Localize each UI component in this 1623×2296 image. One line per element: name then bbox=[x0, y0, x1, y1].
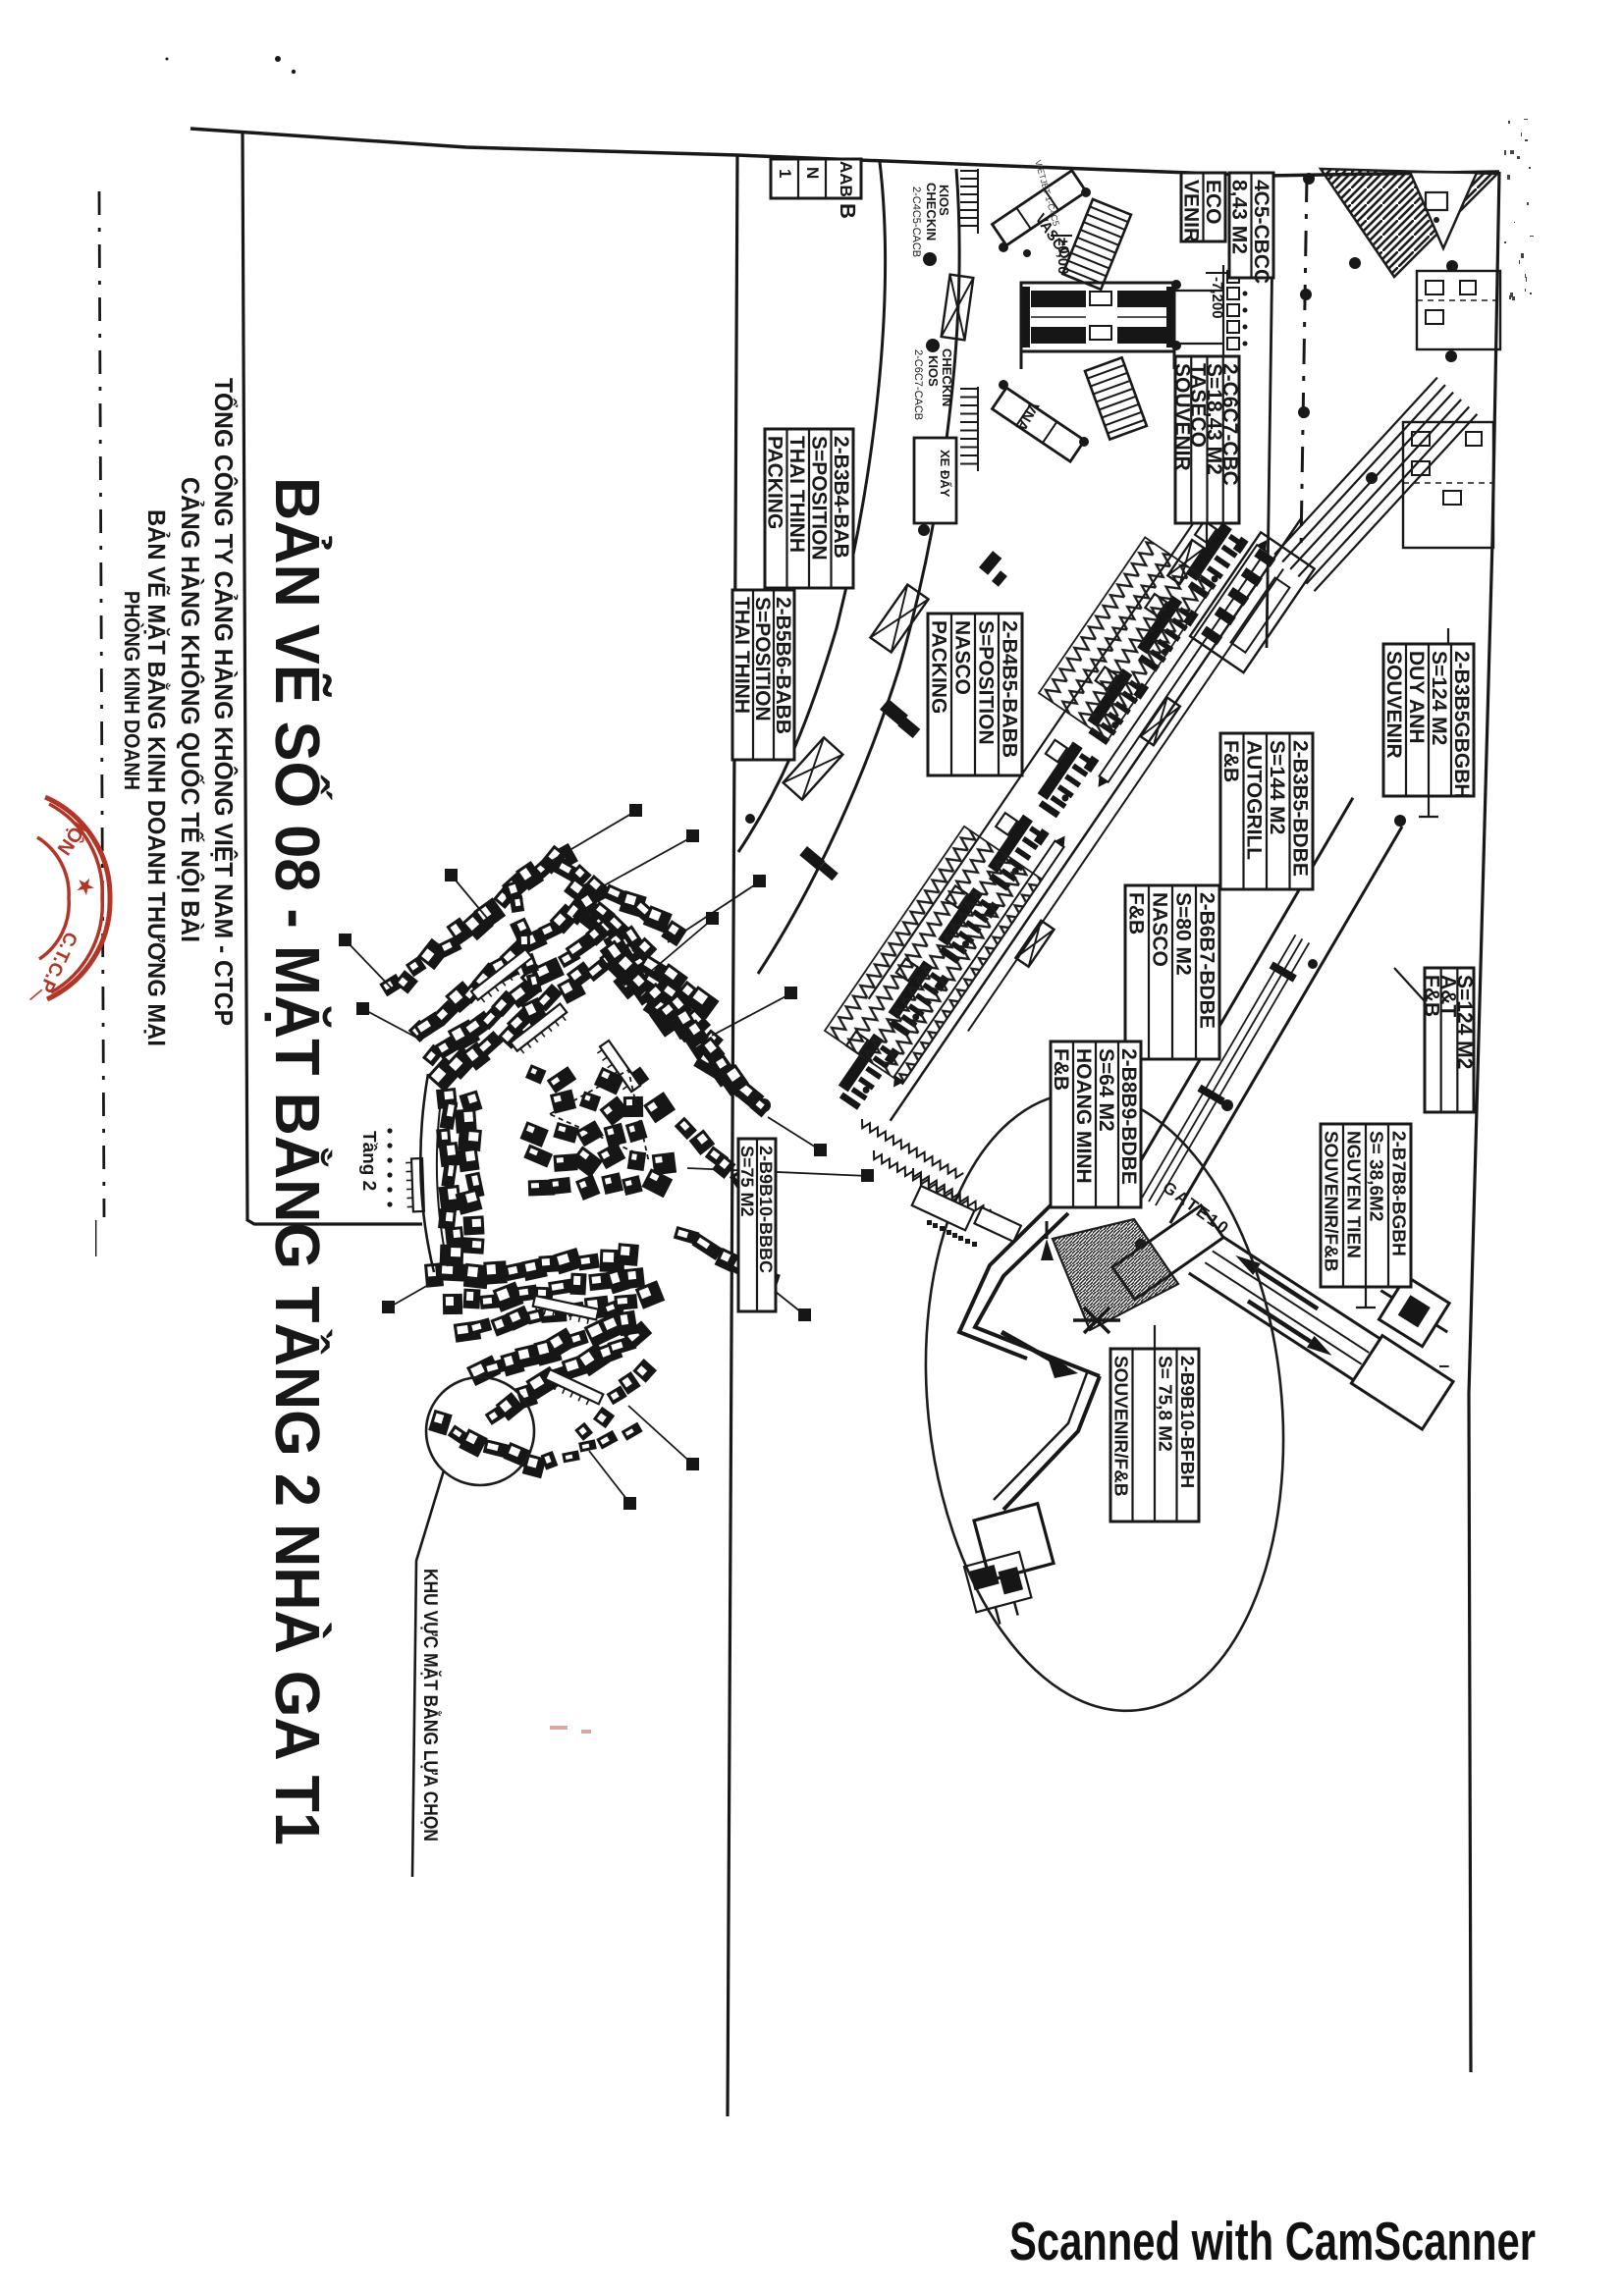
svg-text:1: 1 bbox=[776, 169, 794, 178]
svg-text:NASCO: NASCO bbox=[950, 620, 973, 695]
svg-text:PACKING: PACKING bbox=[764, 436, 786, 529]
svg-text:2-B9B10-BFBH: 2-B9B10-BFBH bbox=[1176, 1356, 1197, 1488]
svg-text:BẢN VẼ MẶT BẰNG KINH DOANH THƯ: BẢN VẼ MẶT BẰNG KINH DOANH THƯƠNG MẠI bbox=[142, 509, 171, 1046]
svg-text:PACKING: PACKING bbox=[927, 620, 949, 714]
svg-text:THAI THINH: THAI THINH bbox=[785, 436, 808, 553]
svg-text:BẢN VẼ SỐ 08 - MẶT BẰNG TẦNG 2: BẢN VẼ SỐ 08 - MẶT BẰNG TẦNG 2 NHÀ GA T1 bbox=[262, 477, 333, 1845]
svg-text:SOUVENIR: SOUVENIR bbox=[1382, 651, 1405, 759]
svg-text:F&B: F&B bbox=[1219, 740, 1242, 782]
svg-text:S=80 M2: S=80 M2 bbox=[1171, 892, 1194, 976]
svg-text:KHU VỰC MẶT BẰNG LỰA CHỌN: KHU VỰC MẶT BẰNG LỰA CHỌN bbox=[419, 1569, 442, 1842]
svg-text:S=POSITION: S=POSITION bbox=[808, 436, 831, 561]
svg-text:TỔNG CÔNG TY CẢNG HÀNG KHÔNG V: TỔNG CÔNG TY CẢNG HÀNG KHÔNG VIỆT NAM - … bbox=[209, 378, 239, 1026]
svg-text:8,43 M2: 8,43 M2 bbox=[1228, 180, 1251, 254]
svg-text:-7,200: -7,200 bbox=[1209, 277, 1225, 319]
svg-text:CHECKIN: CHECKIN bbox=[940, 348, 954, 406]
svg-text:AUTOGRILL: AUTOGRILL bbox=[1243, 740, 1266, 860]
svg-text:DUY ANH: DUY ANH bbox=[1405, 651, 1428, 744]
svg-text:N: N bbox=[803, 167, 822, 179]
svg-text:THAI THINH: THAI THINH bbox=[730, 597, 753, 714]
svg-text:XE ĐẨY: XE ĐẨY bbox=[938, 450, 952, 498]
svg-text:ECO: ECO bbox=[1202, 180, 1224, 225]
svg-text:PHÒNG KINH DOANH: PHÒNG KINH DOANH bbox=[120, 591, 144, 790]
svg-text:S=124 M2: S=124 M2 bbox=[1428, 651, 1450, 745]
svg-text:S= 38,6M2: S= 38,6M2 bbox=[1366, 1131, 1386, 1221]
svg-text:2-B9B10-BBBC: 2-B9B10-BBBC bbox=[756, 1146, 776, 1273]
svg-text:2-B7B8-BGBH: 2-B7B8-BGBH bbox=[1388, 1131, 1409, 1256]
svg-text:2-C4C5-CACB: 2-C4C5-CACB bbox=[910, 187, 922, 257]
svg-text:SOUVENIR/F&B: SOUVENIR/F&B bbox=[1321, 1131, 1341, 1272]
svg-text:S=75 M2: S=75 M2 bbox=[737, 1146, 757, 1217]
svg-text:2-B3B5GBGBH: 2-B3B5GBGBH bbox=[1450, 651, 1473, 799]
svg-text:B: B bbox=[836, 203, 860, 219]
svg-text:HOANG MINH: HOANG MINH bbox=[1072, 1048, 1095, 1184]
svg-text:S=64 M2: S=64 M2 bbox=[1095, 1048, 1117, 1132]
svg-text:SOUVENIR/F&B: SOUVENIR/F&B bbox=[1109, 1356, 1130, 1497]
svg-text:NASCO: NASCO bbox=[1148, 892, 1170, 967]
svg-text:2-B3B5-BDBE: 2-B3B5-BDBE bbox=[1289, 740, 1312, 877]
svg-text:2-C6C7-CACB: 2-C6C7-CACB bbox=[912, 349, 924, 420]
svg-text:2-B6B7-BDBE: 2-B6B7-BDBE bbox=[1195, 892, 1217, 1029]
svg-text:4C5-CBCC: 4C5-CBCC bbox=[1250, 180, 1272, 284]
svg-text:CHECKIN: CHECKIN bbox=[924, 183, 939, 240]
svg-text:2-B5B6-BABB: 2-B5B6-BABB bbox=[772, 597, 794, 734]
svg-text:★: ★ bbox=[73, 876, 97, 897]
svg-text:NGUYEN TIEN: NGUYEN TIEN bbox=[1343, 1131, 1364, 1258]
svg-text:VENIR: VENIR bbox=[1180, 180, 1203, 242]
svg-text:AAB: AAB bbox=[837, 161, 855, 197]
svg-text:I: I bbox=[1436, 1364, 1452, 1368]
svg-text:SOUVENIR: SOUVENIR bbox=[1170, 363, 1193, 471]
svg-text:Scanned with CamScanner: Scanned with CamScanner bbox=[1009, 2211, 1536, 2271]
svg-text:KIOS: KIOS bbox=[926, 355, 941, 387]
svg-text:F&B: F&B bbox=[1050, 1048, 1072, 1091]
svg-text:S=144 M2: S=144 M2 bbox=[1266, 740, 1288, 834]
svg-text:2-B4B5-BABB: 2-B4B5-BABB bbox=[998, 620, 1020, 758]
svg-text:CẢNG HÀNG KHÔNG QUỐC TẾ NỘI BÀ: CẢNG HÀNG KHÔNG QUỐC TẾ NỘI BÀI bbox=[176, 477, 205, 942]
svg-text:S=POSITION: S=POSITION bbox=[751, 597, 774, 721]
svg-text:F&B: F&B bbox=[1421, 975, 1443, 1017]
svg-text:F&B: F&B bbox=[1124, 892, 1147, 934]
svg-text:2-B8B9-BDBE: 2-B8B9-BDBE bbox=[1117, 1048, 1140, 1185]
svg-text:S=POSITION: S=POSITION bbox=[974, 620, 997, 745]
svg-text:2-B3B4-BAB: 2-B3B4-BAB bbox=[830, 436, 852, 559]
svg-text:Tầng 2: Tầng 2 bbox=[358, 1131, 379, 1191]
svg-text:S= 75,8 M2: S= 75,8 M2 bbox=[1154, 1356, 1174, 1452]
svg-text:±0,00: ±0,00 bbox=[1055, 238, 1071, 274]
